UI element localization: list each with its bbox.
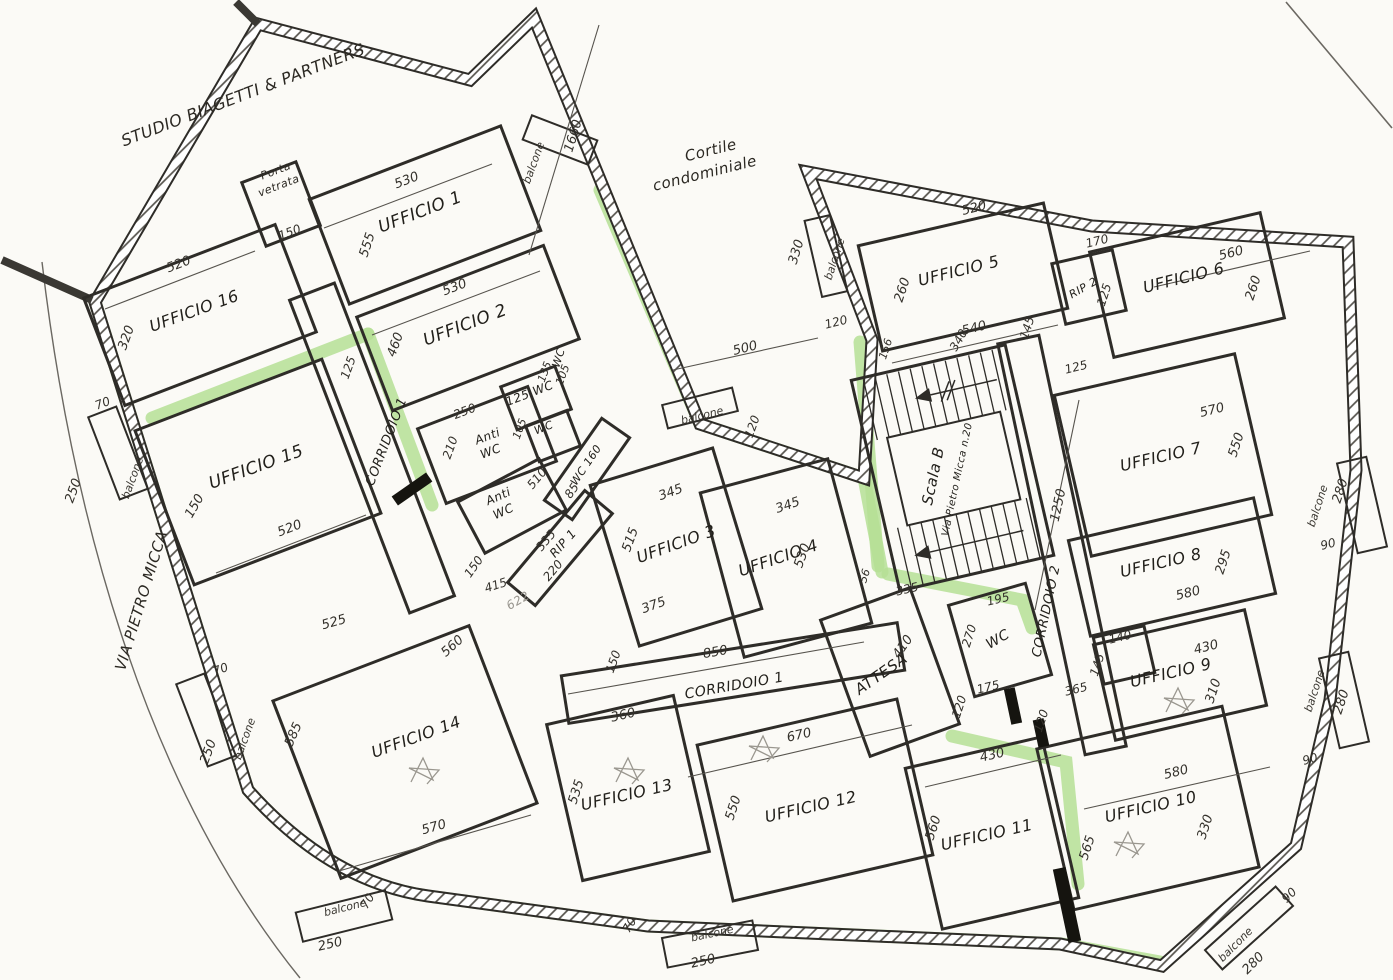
dim-330-u10-label: 330 bbox=[1195, 813, 1217, 841]
dim-560-u6-label: 560 bbox=[1217, 243, 1245, 264]
dim-330-balc-label: 330 bbox=[786, 238, 808, 266]
room-u11-label: UFFICIO 11 bbox=[939, 815, 1035, 855]
dim-525-label: 525 bbox=[320, 612, 348, 633]
room-u7-label: UFFICIO 7 bbox=[1118, 438, 1204, 475]
dim-530-u2-label: 530 bbox=[440, 276, 469, 299]
party-wall-stub bbox=[2, 260, 92, 300]
ctx-via-label: VIA PIETRO MICCA bbox=[111, 528, 171, 672]
dim-220-label: 220 bbox=[540, 557, 566, 584]
door-wc-centro bbox=[1004, 687, 1022, 725]
balc-right-1-label: balcone bbox=[1305, 483, 1331, 528]
dim-1250-label: 1250 bbox=[1048, 488, 1070, 523]
dim-345-u4-label: 345 bbox=[774, 495, 802, 517]
dim-295-label: 295 bbox=[1213, 548, 1235, 576]
dim-430-u9-label: 430 bbox=[1192, 637, 1220, 658]
dim-670-label: 670 bbox=[785, 725, 813, 745]
room-u15-label: UFFICIO 15 bbox=[206, 441, 306, 494]
stair-direction-line-up bbox=[931, 380, 997, 395]
dim-550-u7-label: 550 bbox=[1226, 431, 1248, 459]
dim-120-wc2-label: 120 bbox=[1031, 707, 1052, 733]
pencil-mark-u12 bbox=[749, 736, 779, 762]
dim-250-l1-label: 250 bbox=[62, 477, 85, 505]
room-u10-label: UFFICIO 10 bbox=[1103, 787, 1199, 827]
room-u16-label: UFFICIO 16 bbox=[147, 286, 242, 336]
dim-460-label: 460 bbox=[384, 331, 407, 359]
balc-top-label: balcone bbox=[520, 140, 547, 185]
dim-175-label: 175 bbox=[975, 678, 1000, 697]
room-outline-ufficio14 bbox=[273, 626, 537, 879]
dim-520-u15-label: 520 bbox=[275, 517, 304, 540]
dim-250-l2-label: 250 bbox=[197, 738, 220, 766]
dim-56-label: 56 bbox=[856, 567, 873, 584]
dim-530-u1-label: 530 bbox=[392, 169, 421, 192]
dim-585-label: 585 bbox=[282, 720, 306, 749]
floor-plan-drawing: Planimetria piano uffici - Scala B, Via … bbox=[0, 0, 1393, 980]
dim-145-u9-label: 145 bbox=[1087, 652, 1107, 678]
dim-570-u7-label: 570 bbox=[1198, 400, 1226, 421]
dim-580-u8-label: 580 bbox=[1174, 583, 1202, 604]
dim-550-u12-label: 550 bbox=[723, 794, 745, 822]
balcony-bottom-left bbox=[296, 890, 393, 941]
room-u9-label: UFFICIO 9 bbox=[1128, 654, 1213, 691]
room-u3-label: UFFICIO 3 bbox=[634, 521, 719, 567]
dim-320-label: 320 bbox=[115, 324, 138, 352]
door-openings bbox=[392, 472, 1082, 943]
highlight-exterior-walls bbox=[95, 190, 1160, 962]
dim-250-antiwc-label: 250 bbox=[451, 400, 478, 421]
dim-555-label: 555 bbox=[357, 231, 379, 259]
dim-150-u15-label: 150 bbox=[182, 492, 207, 521]
room-scala-label: Scala B bbox=[918, 445, 948, 506]
dim-260-u6-label: 260 bbox=[1243, 274, 1265, 302]
room-u1-label: UFFICIO 1 bbox=[376, 187, 465, 237]
dim-150-corr-label: 150 bbox=[603, 648, 624, 675]
dim-135-label: 135 bbox=[535, 360, 554, 384]
room-u2-label: UFFICIO 2 bbox=[421, 300, 510, 350]
dim-270-label: 270 bbox=[959, 622, 980, 648]
room-u14-label: UFFICIO 14 bbox=[369, 712, 464, 762]
dim-415-label: 415 bbox=[483, 575, 509, 595]
pencil-mark-u10 bbox=[1114, 832, 1144, 858]
pencil-mark-u13 bbox=[614, 758, 644, 784]
balc-left-1-label: balcone bbox=[119, 455, 146, 500]
dim-260-u5-label: 260 bbox=[892, 276, 914, 304]
dim-500-label: 500 bbox=[731, 338, 759, 359]
room-u8-label: UFFICIO 8 bbox=[1118, 544, 1203, 581]
room-u13-label: UFFICIO 13 bbox=[579, 775, 675, 815]
floor-plan-sheet: Planimetria piano uffici - Scala B, Via … bbox=[0, 0, 1393, 980]
dim-280-corner-label: 280 bbox=[1239, 949, 1267, 977]
party-wall-top bbox=[236, 2, 258, 24]
dim-150-wedge-label: 150 bbox=[461, 553, 486, 580]
dim-120-wc1-label: 120 bbox=[949, 693, 970, 719]
dim-850-label: 850 bbox=[702, 643, 729, 662]
dim-120-u5-label: 120 bbox=[823, 312, 849, 331]
boundary-line-topright bbox=[1286, 2, 1392, 128]
pencil-mark-u14 bbox=[409, 758, 439, 784]
room-wc-centro-label: WC bbox=[983, 626, 1012, 652]
dim-580-u10-label: 580 bbox=[1162, 762, 1190, 783]
dim-310-label: 310 bbox=[1203, 677, 1225, 705]
dim-250-b2-label: 250 bbox=[689, 951, 717, 971]
highlight-u15-top bbox=[152, 334, 368, 418]
dim-365-label: 365 bbox=[1063, 680, 1089, 699]
pencil-mark-u9 bbox=[1164, 688, 1194, 714]
dim-90-r1-label: 90 bbox=[1319, 535, 1338, 552]
pencil-622-label: 622 bbox=[504, 588, 532, 612]
dim-210-label: 210 bbox=[440, 434, 461, 461]
dim-375-label: 375 bbox=[640, 594, 668, 617]
dim-570-u14-label: 570 bbox=[420, 817, 448, 838]
room-u12-label: UFFICIO 12 bbox=[763, 787, 859, 827]
dim-90-corner-label: 90 bbox=[1279, 885, 1300, 906]
dim-520-u16-label: 520 bbox=[164, 253, 193, 276]
room-rip2-label: RIP 2 bbox=[1067, 275, 1100, 302]
dim-125-corr2a-label: 125 bbox=[1063, 358, 1089, 377]
dim-120-balc-label: 120 bbox=[742, 413, 763, 440]
room-u6-label: UFFICIO 6 bbox=[1141, 258, 1226, 297]
dim-345-u3-label: 345 bbox=[657, 481, 685, 504]
dim-150-porta-label: 150 bbox=[276, 221, 303, 242]
room-u5-label: UFFICIO 5 bbox=[916, 251, 1001, 290]
dim-125-corr1-label: 125 bbox=[338, 354, 359, 380]
